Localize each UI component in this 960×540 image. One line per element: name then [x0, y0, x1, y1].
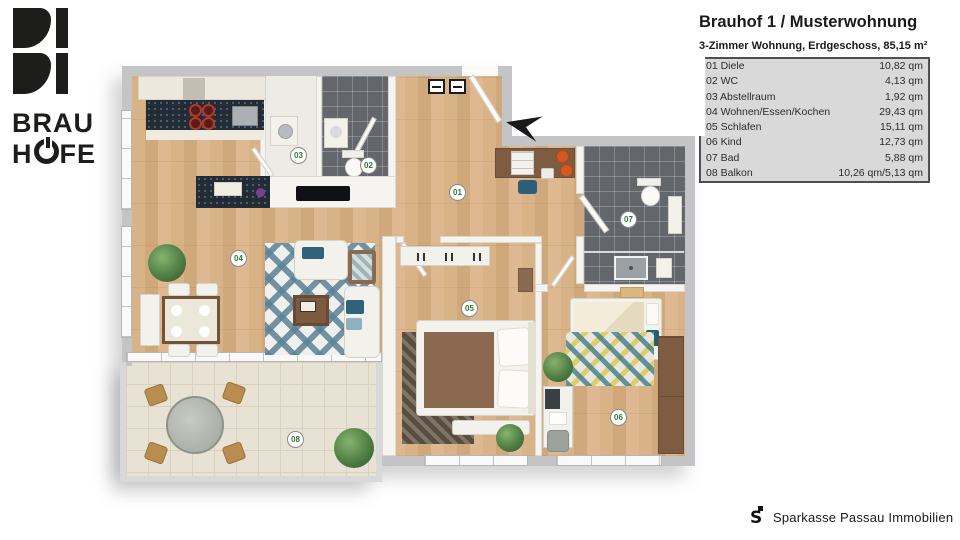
wall: [576, 236, 584, 284]
bed-headboard: [528, 322, 536, 414]
footer-company: Sparkasse Passau Immobilien: [773, 510, 953, 525]
room-label-diele: 01: [449, 184, 466, 201]
kitchen-base-cabinets: [146, 130, 264, 140]
balcony-rail: [120, 362, 126, 482]
wall: [685, 136, 695, 466]
plate: [171, 305, 182, 316]
balcony-table: [166, 396, 224, 454]
storage-basket: [620, 287, 644, 298]
room-label-balkon: 08: [287, 431, 304, 448]
room-legend-table: 01 Diele10,82 qm 02 WC4,13 qm 03 Abstell…: [699, 57, 930, 183]
logo-block-icon: [56, 53, 68, 94]
sofa-pillow: [302, 247, 324, 259]
coffee-table-tray: [300, 301, 316, 312]
bedroom-dresser: [400, 246, 490, 266]
brand-line1: BRAU: [12, 108, 94, 138]
window: [424, 455, 528, 466]
footer-branding: S Sparkasse Passau Immobilien: [750, 506, 953, 528]
stove-burner-icon: [189, 117, 202, 130]
shower-glass: [584, 251, 684, 253]
wall: [535, 284, 548, 292]
wardrobe-symbol: [428, 79, 445, 94]
dining-chair: [196, 283, 218, 296]
stove-burner-icon: [202, 104, 215, 117]
plate: [171, 326, 182, 337]
legend-row: 03 Abstellraum1,92 qm: [701, 90, 928, 105]
wall: [388, 76, 396, 180]
washing-machine-door: [278, 124, 293, 139]
shower-drain: [629, 266, 633, 270]
legend-row: 06 Kind12,73 qm: [701, 135, 928, 150]
window: [556, 455, 662, 466]
tv-panel: [296, 186, 350, 201]
plant: [148, 244, 186, 282]
plant: [334, 428, 374, 468]
room-label-wc: 02: [360, 157, 377, 174]
room-label-abstellraum: 03: [290, 147, 307, 164]
desk-chair: [547, 430, 569, 452]
brand-wordmark: BRAU HFE: [12, 108, 132, 169]
legend-row: 08 Balkon10,26 qm/5,13 qm: [701, 166, 928, 181]
room-label-bad: 07: [620, 211, 637, 228]
power-o-icon: [34, 139, 59, 164]
brand-line2-pre: H: [12, 139, 33, 169]
toilet-bowl: [641, 186, 660, 206]
wall: [535, 243, 542, 456]
accent-chair: [348, 250, 376, 284]
wall: [382, 236, 396, 456]
bath-cabinet: [668, 196, 682, 234]
dining-table: [162, 296, 220, 344]
page-title: Brauhof 1 / Musterwohnung: [699, 13, 917, 32]
bath-sink: [656, 258, 672, 278]
legend-row: 04 Wohnen/Essen/Kochen29,43 qm: [701, 105, 928, 120]
sparkasse-logo-icon: S: [750, 506, 766, 528]
balcony-rail: [120, 476, 382, 482]
dining-chair: [196, 344, 218, 357]
dining-chair: [168, 283, 190, 296]
sofa-pillow: [346, 318, 362, 330]
armchair-blue: [518, 180, 537, 194]
papers: [549, 412, 567, 425]
legend-row: 02 WC4,13 qm: [701, 74, 928, 89]
wall: [502, 66, 512, 144]
legend-row: 01 Diele10,82 qm: [701, 59, 928, 74]
logo-block-icon: [13, 8, 51, 48]
monitor: [545, 389, 560, 409]
sideboard-cabinet: [140, 294, 160, 346]
hall-shelf: [511, 151, 534, 175]
window: [121, 226, 132, 338]
kids-rug: [566, 332, 654, 386]
bedroom-nightstand: [518, 268, 533, 292]
logo-block-icon: [13, 53, 51, 94]
island-tray: [214, 182, 242, 196]
bed-pillow: [497, 327, 532, 367]
window: [121, 110, 132, 210]
stool: [560, 164, 573, 177]
bed-pillow: [646, 303, 659, 325]
logo-block-icon: [56, 8, 68, 48]
brand-line2-post: FE: [60, 139, 97, 169]
wall: [576, 146, 584, 194]
side-table: [541, 168, 554, 179]
entrance-opening: [462, 66, 498, 76]
wall: [122, 66, 462, 76]
plate: [199, 305, 210, 316]
kids-wardrobe: [658, 336, 684, 454]
room-label-kind: 06: [610, 409, 627, 426]
fruit-bowl: [256, 188, 265, 197]
legend-row: 05 Schlafen15,11 qm: [701, 120, 928, 135]
stool: [556, 150, 569, 163]
bed-blanket: [424, 332, 494, 408]
stove-burner-icon: [189, 104, 202, 117]
floorplan-page: BRAU HFE Brauhof 1 / Musterwohnung 3-Zim…: [0, 0, 960, 540]
kitchen-sink: [232, 106, 258, 126]
plate: [199, 326, 210, 337]
wardrobe-symbol: [449, 79, 466, 94]
stove-burner-icon: [202, 117, 215, 130]
page-subtitle: 3-Zimmer Wohnung, Erdgeschoss, 85,15 m²: [699, 40, 927, 52]
toilet: [342, 150, 364, 158]
notch-mask: [505, 52, 705, 136]
bed-pillow: [497, 369, 531, 409]
toilet: [637, 178, 661, 186]
wall: [440, 236, 542, 243]
legend-row: 07 Bad5,88 qm: [701, 151, 928, 166]
wc-basin: [330, 126, 342, 138]
dining-chair: [168, 344, 190, 357]
room-label-schlafen: 05: [461, 300, 478, 317]
sofa-pillow: [346, 300, 364, 314]
room-label-wohnen: 04: [230, 250, 247, 267]
wall: [316, 76, 322, 180]
loveseat: [294, 240, 348, 280]
plant: [543, 352, 573, 382]
plant: [496, 424, 524, 452]
